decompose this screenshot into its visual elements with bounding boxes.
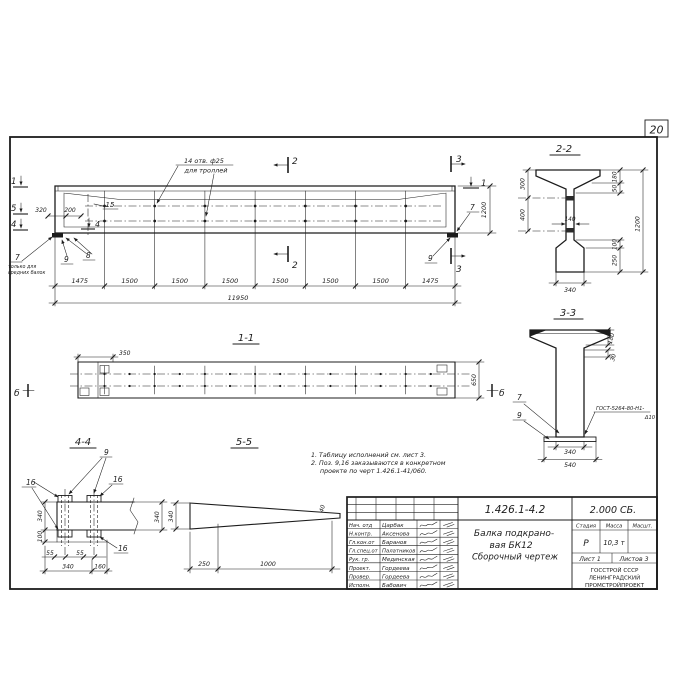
pos-9-33: 9 bbox=[517, 411, 522, 420]
note-line-1: 1. Таблицу исполнений см. лист 3. bbox=[311, 451, 426, 459]
dim-100-44: 100 bbox=[37, 531, 44, 543]
mass-value: 10,3 т bbox=[603, 539, 625, 547]
staff-name: Баранов bbox=[382, 540, 407, 546]
org-line3: ПРОМСТРОЙПРОЕКТ bbox=[585, 582, 645, 589]
doc-number: 1.426.1-4.2 bbox=[485, 504, 546, 516]
staff-role: Гл.спец.от bbox=[349, 549, 379, 555]
staff-role: Гл.кон.от bbox=[349, 540, 375, 546]
section-marks-left: 1 5 4 bbox=[11, 176, 28, 230]
weld-note-line2: Δ10 bbox=[644, 415, 656, 421]
staff-name: Гордеева bbox=[382, 566, 410, 572]
org-line2: ЛЕНИНГРАДСКИЙ bbox=[589, 575, 641, 582]
page-number: 20 bbox=[650, 124, 664, 137]
dim-320: 320 bbox=[35, 207, 47, 214]
dim-55-b: 55 bbox=[76, 550, 84, 557]
taper-plate-outline bbox=[190, 503, 340, 529]
dim-1500: 1500 bbox=[372, 277, 389, 285]
org-line1: ГОССТРОЙ СССР bbox=[591, 567, 639, 574]
dim-340-bottom-44: 340 bbox=[62, 564, 74, 571]
holes-note-line1: 14 отв. ф25 bbox=[184, 157, 224, 165]
dim-55-a: 55 bbox=[46, 550, 54, 557]
staff-role: Н.контр. bbox=[349, 532, 372, 538]
dim-total-11950: 11950 bbox=[228, 294, 249, 302]
title-block: 1.426.1-4.2 2.000 СБ. Балка подкрано- ва… bbox=[347, 497, 657, 589]
staff-role: Провер. bbox=[349, 574, 371, 580]
dim-340-55: 340 bbox=[168, 511, 175, 523]
mark-1-left: 1 bbox=[11, 177, 16, 187]
notes: 1. Таблицу исполнений см. лист 3. 2. Поз… bbox=[311, 451, 446, 475]
staff-rows: Нач. отд Царбак Н.контр. Аксенова Гл.кон… bbox=[349, 523, 415, 589]
staff-role: Проект. bbox=[349, 566, 370, 572]
dim-180: 180 bbox=[613, 171, 619, 182]
base-plate bbox=[544, 437, 596, 442]
dim-350: 350 bbox=[119, 350, 131, 357]
holes-note-line2: для троллей bbox=[183, 167, 227, 175]
staff-name: Мединская bbox=[382, 557, 415, 563]
drawing-title-line3: Сборочный чертеж bbox=[472, 553, 558, 563]
mark-2-bottom: 2 bbox=[292, 261, 298, 271]
section-1-1: 1-1 350 б 650 б bbox=[14, 333, 505, 401]
mark-4-inner: 4 bbox=[95, 220, 100, 229]
sheets-total: Листов 3 bbox=[618, 556, 648, 563]
section-2-2: 2-2 300 400 180 50 100 250 1200 140 340 bbox=[518, 144, 648, 294]
doc-code: 2.000 СБ. bbox=[590, 505, 636, 516]
dim-1500: 1500 bbox=[272, 277, 289, 285]
pos7-note-line1: только для bbox=[8, 265, 36, 270]
bearing-pad-right bbox=[447, 233, 458, 238]
dim-1000-55: 1000 bbox=[260, 561, 276, 568]
view-marker-left: б bbox=[14, 389, 20, 399]
dim-1475-right: 1475 bbox=[422, 277, 439, 285]
dim-1500: 1500 bbox=[172, 277, 189, 285]
pos-16-bottomright: 16 bbox=[118, 544, 128, 553]
dim-650: 650 bbox=[471, 374, 478, 386]
plan-outline bbox=[78, 362, 455, 398]
dim-400: 400 bbox=[520, 209, 527, 221]
dim-540-33: 540 bbox=[564, 462, 576, 469]
section-4-4: 4-4 9 16 16 16 340 100 340 55 55 bbox=[22, 437, 167, 574]
staff-role: Исполн. bbox=[349, 583, 371, 589]
mass-header: Масса bbox=[606, 524, 623, 530]
staff-role: Нач. отд bbox=[349, 523, 373, 529]
section-4-4-title: 4-4 bbox=[75, 437, 91, 448]
staff-name: Палатников bbox=[382, 549, 415, 555]
mark-5-left: 5 bbox=[11, 204, 16, 214]
mark-3-bottom: 3 bbox=[456, 265, 462, 275]
staff-name: Бабович bbox=[382, 583, 407, 589]
pos-7-33: 7 bbox=[517, 393, 522, 402]
sheet-frame: 20 bbox=[10, 120, 668, 589]
pos-9-left: 9 bbox=[64, 255, 69, 264]
mark-2-top: 2 bbox=[292, 157, 298, 167]
dim-160-44: 160 bbox=[94, 564, 106, 571]
pos-16-topright: 16 bbox=[113, 475, 123, 484]
section-1-1-title: 1-1 bbox=[238, 333, 254, 344]
scale-header: Масшт. bbox=[633, 524, 653, 530]
weld-note-line1: ГОСТ-5264-80-Н1- bbox=[596, 406, 644, 412]
sheet-number: Лист 1 bbox=[578, 556, 601, 563]
drawing-canvas: 20 14 отв. ф25 для троллей 1 5 4 4 bbox=[0, 0, 700, 700]
dim-1500: 1500 bbox=[222, 277, 239, 285]
dim-1200-section: 1200 bbox=[635, 216, 642, 232]
staff-name: Царбак bbox=[382, 523, 404, 529]
staff-name: Аксенова bbox=[381, 532, 410, 538]
staff-role: Рук. гр. bbox=[349, 557, 369, 563]
dim-30-33: 30 bbox=[610, 353, 618, 362]
dim-height-1200: 1200 bbox=[480, 202, 488, 219]
section-5-5-title: 5-5 bbox=[236, 437, 252, 448]
dim-1475-left: 1475 bbox=[72, 277, 89, 285]
elevation-view: 14 отв. ф25 для троллей 1 5 4 4 2 2 3 3 bbox=[8, 155, 496, 306]
dim-40-55: 40 bbox=[319, 504, 327, 513]
note-line-2: 2. Поз. 9,16 заказываются в конкретном bbox=[311, 460, 446, 467]
note-line-3: проекте по черт 1.426.1-41/060. bbox=[320, 468, 427, 475]
dim-1500: 1500 bbox=[322, 277, 339, 285]
section-2-2-title: 2-2 bbox=[556, 144, 572, 155]
dim-340-22: 340 bbox=[564, 287, 576, 294]
dim-140: 140 bbox=[564, 217, 575, 223]
stage-header: Стадия bbox=[576, 524, 596, 530]
pos-7-right: 7 bbox=[470, 203, 475, 212]
mark-3-top: 3 bbox=[456, 155, 462, 165]
pos-7-left: 7 bbox=[15, 253, 20, 262]
view-marker-right: б bbox=[499, 389, 505, 399]
section-3-3: 3-3 7 9 ГОСТ-5264-80-Н1- Δ10 180 30 340 … bbox=[513, 308, 656, 469]
mark-1-right: 1 bbox=[481, 179, 486, 189]
dim-200: 200 bbox=[64, 207, 76, 214]
stage-value: Р bbox=[583, 539, 589, 549]
pos-9-right: 9 bbox=[428, 254, 433, 263]
section-3-3-outline bbox=[530, 330, 610, 437]
dim-50: 50 bbox=[613, 185, 619, 193]
staff-name: Гордеева bbox=[382, 574, 410, 580]
dim-100: 100 bbox=[613, 239, 619, 250]
dim-340-33: 340 bbox=[564, 449, 576, 456]
dim-340-right-44: 340 bbox=[154, 511, 161, 523]
drawing-title-line1: Балка подкрано- bbox=[474, 529, 554, 539]
dim-250-55: 250 bbox=[198, 561, 210, 568]
dim-340-left-44: 340 bbox=[37, 510, 44, 522]
pos-15: 15 bbox=[106, 201, 115, 209]
dim-300: 300 bbox=[520, 178, 527, 190]
mark-4-left: 4 bbox=[11, 220, 16, 230]
dim-250: 250 bbox=[613, 255, 619, 266]
bearing-pad-left bbox=[52, 233, 63, 238]
drawing-title-line2: вая БК12 bbox=[489, 541, 532, 551]
pos7-note-line2: средних балок bbox=[8, 270, 45, 276]
drawing-sheet: 20 14 отв. ф25 для троллей 1 5 4 4 bbox=[0, 0, 700, 700]
dim-1500: 1500 bbox=[121, 277, 138, 285]
pos-9-44: 9 bbox=[104, 448, 109, 457]
section-3-3-title: 3-3 bbox=[560, 308, 576, 319]
